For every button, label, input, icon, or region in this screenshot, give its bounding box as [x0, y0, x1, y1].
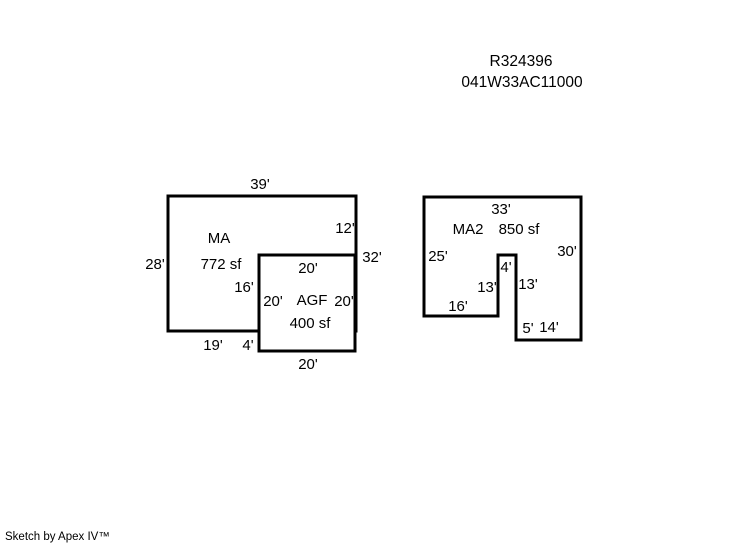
ma2-dim-bottom-right: 14' — [539, 319, 559, 336]
ma-dim-inner-left: 16' — [234, 279, 254, 296]
ma2-dim-right: 30' — [557, 243, 577, 260]
ma2-dim-notch-left: 13' — [477, 279, 497, 296]
sketch-canvas: R324396 041W33AC11000 39' MA 772 sf 28' … — [0, 0, 746, 547]
ma2-dim-left: 25' — [428, 248, 448, 265]
ma2-dim-step: 5' — [522, 320, 533, 337]
agf-building-label: AGF — [297, 292, 328, 309]
ma2-dim-bottom-left: 16' — [448, 298, 468, 315]
sketch-page: R324396 041W33AC11000 39' MA 772 sf 28' … — [0, 0, 746, 547]
record-id: R324396 — [490, 53, 553, 70]
ma-dim-bottom-step: 4' — [242, 337, 253, 354]
ma-building-label: MA — [208, 230, 231, 247]
ma-dim-right-total: 32' — [362, 249, 382, 266]
ma-dim-left: 28' — [145, 256, 165, 273]
agf-dim-top: 20' — [298, 260, 318, 277]
ma-area-label: 772 sf — [201, 256, 243, 273]
ma2-dim-notch-width: 4' — [500, 259, 511, 276]
sketch-credit: Sketch by Apex IV™ — [5, 531, 110, 543]
agf-dim-bottom: 20' — [298, 356, 318, 373]
ma2-dim-top: 33' — [491, 201, 511, 218]
agf-dim-right: 20' — [334, 293, 354, 310]
ma-dim-top: 39' — [250, 176, 270, 193]
parcel-id: 041W33AC11000 — [461, 74, 583, 91]
ma2-area-label: 850 sf — [499, 221, 541, 238]
ma-dim-bottom: 19' — [203, 337, 223, 354]
agf-area-label: 400 sf — [290, 315, 332, 332]
ma2-dim-notch-right: 13' — [518, 276, 538, 293]
ma-dim-right-upper: 12' — [335, 220, 355, 237]
ma2-building-label: MA2 — [453, 221, 484, 238]
agf-dim-left: 20' — [263, 293, 283, 310]
